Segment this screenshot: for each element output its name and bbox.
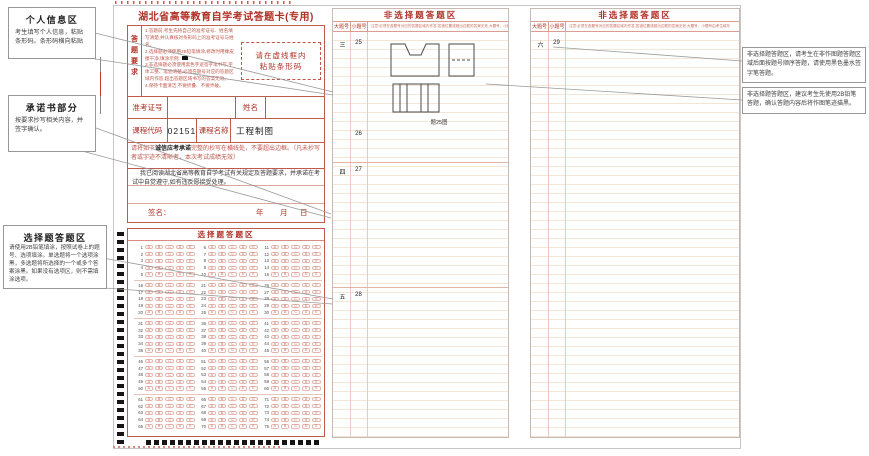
answer-bubble-b[interactable]: B bbox=[218, 290, 227, 294]
answer-bubble-a[interactable]: A bbox=[145, 304, 154, 308]
answer-bubble-c[interactable]: C bbox=[291, 348, 300, 352]
answer-bubble-c[interactable]: C bbox=[228, 266, 237, 270]
answer-bubble-d[interactable]: D bbox=[239, 252, 248, 256]
answer-bubble-a[interactable]: A bbox=[208, 252, 217, 256]
answer-bubble-a[interactable]: A bbox=[145, 321, 154, 325]
answer-bubble-e[interactable]: E bbox=[312, 328, 321, 332]
answer-bubble-c[interactable]: C bbox=[228, 310, 237, 314]
answer-bubble-e[interactable]: E bbox=[249, 366, 258, 370]
answer-bubble-e[interactable]: E bbox=[186, 328, 195, 332]
answer-bubble-b[interactable]: B bbox=[155, 386, 164, 390]
answer-bubble-a[interactable]: A bbox=[208, 373, 217, 377]
answer-bubble-d[interactable]: D bbox=[239, 380, 248, 384]
answer-bubble-d[interactable]: D bbox=[302, 266, 311, 270]
answer-bubble-b[interactable]: B bbox=[218, 342, 227, 346]
answer-bubble-e[interactable]: E bbox=[186, 245, 195, 249]
answer-bubble-b[interactable]: B bbox=[218, 252, 227, 256]
answer-bubble-a[interactable]: A bbox=[271, 397, 280, 401]
answer-bubble-b[interactable]: B bbox=[281, 397, 290, 401]
answer-bubble-d[interactable]: D bbox=[239, 359, 248, 363]
answer-bubble-a[interactable]: A bbox=[208, 411, 217, 415]
answer-bubble-e[interactable]: E bbox=[312, 342, 321, 346]
answer-bubble-d[interactable]: D bbox=[176, 266, 185, 270]
answer-bubble-e[interactable]: E bbox=[312, 266, 321, 270]
answer-bubble-a[interactable]: A bbox=[271, 283, 280, 287]
answer-bubble-c[interactable]: C bbox=[165, 386, 174, 390]
answer-bubble-b[interactable]: B bbox=[218, 304, 227, 308]
answer-bubble-b[interactable]: B bbox=[155, 366, 164, 370]
answer-bubble-e[interactable]: E bbox=[249, 272, 258, 276]
answer-bubble-c[interactable]: C bbox=[165, 404, 174, 408]
answer-bubble-a[interactable]: A bbox=[271, 424, 280, 428]
answer-bubble-c[interactable]: C bbox=[291, 272, 300, 276]
answer-bubble-c[interactable]: C bbox=[165, 366, 174, 370]
answer-bubble-c[interactable]: C bbox=[165, 272, 174, 276]
essay-answer-area[interactable]: 六 29 bbox=[531, 32, 739, 437]
answer-bubble-b[interactable]: B bbox=[281, 283, 290, 287]
answer-bubble-d[interactable]: D bbox=[239, 304, 248, 308]
essay-answer-area[interactable]: 三 25 26 四 27 五 28 题25图 bbox=[333, 32, 508, 437]
answer-bubble-b[interactable]: B bbox=[218, 310, 227, 314]
answer-bubble-a[interactable]: A bbox=[271, 328, 280, 332]
answer-bubble-c[interactable]: C bbox=[291, 252, 300, 256]
answer-bubble-a[interactable]: A bbox=[208, 418, 217, 422]
answer-bubble-c[interactable]: C bbox=[291, 245, 300, 249]
answer-bubble-d[interactable]: D bbox=[176, 424, 185, 428]
answer-bubble-c[interactable]: C bbox=[291, 380, 300, 384]
answer-bubble-a[interactable]: A bbox=[271, 297, 280, 301]
answer-bubble-d[interactable]: D bbox=[176, 290, 185, 294]
answer-bubble-a[interactable]: A bbox=[271, 386, 280, 390]
answer-bubble-d[interactable]: D bbox=[176, 348, 185, 352]
answer-bubble-e[interactable]: E bbox=[312, 290, 321, 294]
answer-bubble-d[interactable]: D bbox=[302, 359, 311, 363]
answer-bubble-c[interactable]: C bbox=[228, 373, 237, 377]
answer-bubble-e[interactable]: E bbox=[249, 245, 258, 249]
answer-bubble-b[interactable]: B bbox=[281, 386, 290, 390]
answer-bubble-a[interactable]: A bbox=[208, 266, 217, 270]
answer-bubble-b[interactable]: B bbox=[155, 342, 164, 346]
answer-bubble-b[interactable]: B bbox=[218, 366, 227, 370]
answer-bubble-d[interactable]: D bbox=[302, 245, 311, 249]
answer-bubble-e[interactable]: E bbox=[312, 386, 321, 390]
answer-bubble-b[interactable]: B bbox=[281, 424, 290, 428]
answer-bubble-a[interactable]: A bbox=[145, 290, 154, 294]
answer-bubble-e[interactable]: E bbox=[249, 348, 258, 352]
answer-bubble-c[interactable]: C bbox=[228, 348, 237, 352]
answer-bubble-b[interactable]: B bbox=[155, 310, 164, 314]
answer-bubble-a[interactable]: A bbox=[145, 297, 154, 301]
answer-bubble-d[interactable]: D bbox=[239, 266, 248, 270]
answer-bubble-b[interactable]: B bbox=[281, 348, 290, 352]
answer-bubble-e[interactable]: E bbox=[312, 359, 321, 363]
answer-bubble-e[interactable]: E bbox=[186, 404, 195, 408]
answer-bubble-e[interactable]: E bbox=[249, 297, 258, 301]
answer-bubble-e[interactable]: E bbox=[249, 283, 258, 287]
answer-bubble-b[interactable]: B bbox=[281, 342, 290, 346]
answer-bubble-e[interactable]: E bbox=[312, 335, 321, 339]
answer-bubble-d[interactable]: D bbox=[176, 373, 185, 377]
answer-bubble-d[interactable]: D bbox=[302, 283, 311, 287]
answer-bubble-d[interactable]: D bbox=[239, 397, 248, 401]
answer-bubble-a[interactable]: A bbox=[208, 397, 217, 401]
answer-bubble-d[interactable]: D bbox=[176, 359, 185, 363]
answer-bubble-a[interactable]: A bbox=[208, 335, 217, 339]
answer-bubble-e[interactable]: E bbox=[312, 252, 321, 256]
answer-bubble-e[interactable]: E bbox=[186, 266, 195, 270]
answer-bubble-d[interactable]: D bbox=[239, 321, 248, 325]
answer-bubble-e[interactable]: E bbox=[249, 411, 258, 415]
answer-bubble-d[interactable]: D bbox=[239, 297, 248, 301]
answer-bubble-c[interactable]: C bbox=[228, 366, 237, 370]
answer-bubble-b[interactable]: B bbox=[155, 266, 164, 270]
answer-bubble-d[interactable]: D bbox=[176, 321, 185, 325]
answer-bubble-b[interactable]: B bbox=[281, 411, 290, 415]
answer-bubble-b[interactable]: B bbox=[281, 304, 290, 308]
answer-bubble-d[interactable]: D bbox=[302, 335, 311, 339]
answer-bubble-c[interactable]: C bbox=[228, 380, 237, 384]
answer-bubble-a[interactable]: A bbox=[271, 259, 280, 263]
answer-bubble-e[interactable]: E bbox=[186, 259, 195, 263]
answer-bubble-c[interactable]: C bbox=[228, 321, 237, 325]
answer-bubble-a[interactable]: A bbox=[145, 328, 154, 332]
answer-bubble-b[interactable]: B bbox=[218, 283, 227, 287]
answer-bubble-d[interactable]: D bbox=[302, 348, 311, 352]
answer-bubble-c[interactable]: C bbox=[165, 304, 174, 308]
answer-bubble-c[interactable]: C bbox=[291, 424, 300, 428]
answer-bubble-b[interactable]: B bbox=[281, 272, 290, 276]
answer-bubble-a[interactable]: A bbox=[208, 290, 217, 294]
answer-bubble-b[interactable]: B bbox=[218, 397, 227, 401]
answer-bubble-d[interactable]: D bbox=[176, 252, 185, 256]
answer-bubble-a[interactable]: A bbox=[271, 290, 280, 294]
answer-bubble-e[interactable]: E bbox=[249, 424, 258, 428]
answer-bubble-c[interactable]: C bbox=[228, 272, 237, 276]
answer-bubble-b[interactable]: B bbox=[281, 335, 290, 339]
answer-bubble-d[interactable]: D bbox=[302, 366, 311, 370]
answer-bubble-b[interactable]: B bbox=[155, 380, 164, 384]
answer-bubble-a[interactable]: A bbox=[208, 404, 217, 408]
answer-bubble-e[interactable]: E bbox=[186, 310, 195, 314]
answer-bubble-c[interactable]: C bbox=[228, 328, 237, 332]
answer-bubble-d[interactable]: D bbox=[176, 335, 185, 339]
answer-bubble-e[interactable]: E bbox=[186, 348, 195, 352]
answer-bubble-a[interactable]: A bbox=[145, 272, 154, 276]
answer-bubble-c[interactable]: C bbox=[291, 418, 300, 422]
answer-bubble-b[interactable]: B bbox=[281, 310, 290, 314]
answer-bubble-b[interactable]: B bbox=[218, 259, 227, 263]
answer-bubble-b[interactable]: B bbox=[218, 386, 227, 390]
answer-bubble-c[interactable]: C bbox=[228, 404, 237, 408]
answer-bubble-c[interactable]: C bbox=[228, 411, 237, 415]
answer-bubble-d[interactable]: D bbox=[302, 418, 311, 422]
answer-bubble-d[interactable]: D bbox=[302, 386, 311, 390]
answer-bubble-e[interactable]: E bbox=[186, 290, 195, 294]
answer-bubble-d[interactable]: D bbox=[239, 348, 248, 352]
answer-bubble-b[interactable]: B bbox=[218, 348, 227, 352]
answer-bubble-c[interactable]: C bbox=[165, 245, 174, 249]
answer-bubble-d[interactable]: D bbox=[239, 411, 248, 415]
answer-bubble-d[interactable]: D bbox=[239, 283, 248, 287]
answer-bubble-b[interactable]: B bbox=[155, 359, 164, 363]
answer-bubble-c[interactable]: C bbox=[165, 418, 174, 422]
answer-bubble-c[interactable]: C bbox=[291, 310, 300, 314]
answer-bubble-c[interactable]: C bbox=[291, 321, 300, 325]
answer-bubble-c[interactable]: C bbox=[165, 328, 174, 332]
answer-bubble-c[interactable]: C bbox=[291, 328, 300, 332]
answer-bubble-c[interactable]: C bbox=[291, 373, 300, 377]
answer-bubble-b[interactable]: B bbox=[155, 335, 164, 339]
answer-bubble-d[interactable]: D bbox=[176, 366, 185, 370]
answer-bubble-e[interactable]: E bbox=[186, 418, 195, 422]
answer-bubble-b[interactable]: B bbox=[155, 321, 164, 325]
answer-bubble-d[interactable]: D bbox=[176, 297, 185, 301]
answer-bubble-c[interactable]: C bbox=[165, 397, 174, 401]
answer-bubble-a[interactable]: A bbox=[145, 366, 154, 370]
answer-bubble-e[interactable]: E bbox=[186, 386, 195, 390]
answer-bubble-b[interactable]: B bbox=[281, 373, 290, 377]
answer-bubble-d[interactable]: D bbox=[239, 342, 248, 346]
answer-bubble-b[interactable]: B bbox=[218, 404, 227, 408]
answer-bubble-d[interactable]: D bbox=[176, 411, 185, 415]
answer-bubble-a[interactable]: A bbox=[271, 266, 280, 270]
answer-bubble-e[interactable]: E bbox=[312, 348, 321, 352]
answer-bubble-d[interactable]: D bbox=[302, 272, 311, 276]
answer-bubble-e[interactable]: E bbox=[249, 310, 258, 314]
answer-bubble-a[interactable]: A bbox=[145, 424, 154, 428]
answer-bubble-d[interactable]: D bbox=[302, 252, 311, 256]
answer-bubble-d[interactable]: D bbox=[302, 380, 311, 384]
answer-bubble-b[interactable]: B bbox=[155, 397, 164, 401]
answer-bubble-e[interactable]: E bbox=[312, 245, 321, 249]
answer-bubble-b[interactable]: B bbox=[155, 259, 164, 263]
answer-bubble-d[interactable]: D bbox=[239, 373, 248, 377]
answer-bubble-e[interactable]: E bbox=[249, 397, 258, 401]
answer-bubble-a[interactable]: A bbox=[208, 283, 217, 287]
answer-bubble-d[interactable]: D bbox=[239, 245, 248, 249]
answer-bubble-b[interactable]: B bbox=[155, 411, 164, 415]
answer-bubble-e[interactable]: E bbox=[249, 418, 258, 422]
answer-bubble-a[interactable]: A bbox=[145, 245, 154, 249]
answer-bubble-a[interactable]: A bbox=[208, 259, 217, 263]
answer-bubble-b[interactable]: B bbox=[281, 266, 290, 270]
answer-bubble-c[interactable]: C bbox=[291, 259, 300, 263]
answer-bubble-d[interactable]: D bbox=[176, 386, 185, 390]
answer-bubble-e[interactable]: E bbox=[312, 380, 321, 384]
answer-bubble-a[interactable]: A bbox=[145, 283, 154, 287]
answer-bubble-b[interactable]: B bbox=[218, 424, 227, 428]
answer-bubble-c[interactable]: C bbox=[165, 310, 174, 314]
answer-bubble-c[interactable]: C bbox=[165, 259, 174, 263]
answer-bubble-c[interactable]: C bbox=[228, 424, 237, 428]
answer-bubble-b[interactable]: B bbox=[218, 373, 227, 377]
answer-bubble-d[interactable]: D bbox=[302, 397, 311, 401]
answer-bubble-a[interactable]: A bbox=[145, 411, 154, 415]
answer-bubble-c[interactable]: C bbox=[291, 290, 300, 294]
answer-bubble-a[interactable]: A bbox=[271, 310, 280, 314]
answer-bubble-b[interactable]: B bbox=[155, 245, 164, 249]
answer-bubble-d[interactable]: D bbox=[176, 418, 185, 422]
answer-bubble-e[interactable]: E bbox=[186, 424, 195, 428]
answer-bubble-d[interactable]: D bbox=[302, 328, 311, 332]
answer-bubble-c[interactable]: C bbox=[291, 397, 300, 401]
answer-bubble-b[interactable]: B bbox=[155, 328, 164, 332]
answer-bubble-e[interactable]: E bbox=[249, 328, 258, 332]
answer-bubble-c[interactable]: C bbox=[291, 342, 300, 346]
answer-bubble-e[interactable]: E bbox=[186, 252, 195, 256]
answer-bubble-e[interactable]: E bbox=[312, 321, 321, 325]
answer-bubble-a[interactable]: A bbox=[271, 380, 280, 384]
answer-bubble-e[interactable]: E bbox=[312, 259, 321, 263]
answer-bubble-d[interactable]: D bbox=[239, 259, 248, 263]
answer-bubble-a[interactable]: A bbox=[145, 418, 154, 422]
answer-bubble-a[interactable]: A bbox=[271, 366, 280, 370]
answer-bubble-c[interactable]: C bbox=[165, 373, 174, 377]
answer-bubble-a[interactable]: A bbox=[271, 321, 280, 325]
answer-bubble-d[interactable]: D bbox=[176, 272, 185, 276]
answer-bubble-b[interactable]: B bbox=[281, 380, 290, 384]
answer-bubble-e[interactable]: E bbox=[312, 397, 321, 401]
answer-bubble-d[interactable]: D bbox=[176, 245, 185, 249]
answer-bubble-b[interactable]: B bbox=[281, 404, 290, 408]
answer-bubble-a[interactable]: A bbox=[208, 245, 217, 249]
answer-bubble-a[interactable]: A bbox=[271, 252, 280, 256]
answer-bubble-c[interactable]: C bbox=[165, 290, 174, 294]
answer-bubble-e[interactable]: E bbox=[249, 380, 258, 384]
answer-bubble-b[interactable]: B bbox=[218, 380, 227, 384]
answer-bubble-a[interactable]: A bbox=[208, 297, 217, 301]
answer-bubble-d[interactable]: D bbox=[302, 297, 311, 301]
answer-bubble-e[interactable]: E bbox=[312, 310, 321, 314]
answer-bubble-e[interactable]: E bbox=[249, 386, 258, 390]
answer-bubble-b[interactable]: B bbox=[155, 404, 164, 408]
answer-bubble-b[interactable]: B bbox=[281, 290, 290, 294]
answer-bubble-b[interactable]: B bbox=[218, 411, 227, 415]
answer-bubble-c[interactable]: C bbox=[228, 252, 237, 256]
answer-bubble-e[interactable]: E bbox=[186, 359, 195, 363]
answer-bubble-c[interactable]: C bbox=[228, 335, 237, 339]
answer-bubble-c[interactable]: C bbox=[228, 283, 237, 287]
answer-bubble-c[interactable]: C bbox=[228, 297, 237, 301]
answer-bubble-b[interactable]: B bbox=[218, 335, 227, 339]
answer-bubble-c[interactable]: C bbox=[228, 342, 237, 346]
answer-bubble-e[interactable]: E bbox=[312, 304, 321, 308]
answer-bubble-e[interactable]: E bbox=[312, 272, 321, 276]
answer-bubble-a[interactable]: A bbox=[145, 386, 154, 390]
answer-bubble-a[interactable]: A bbox=[145, 373, 154, 377]
answer-bubble-b[interactable]: B bbox=[281, 252, 290, 256]
answer-bubble-c[interactable]: C bbox=[165, 342, 174, 346]
answer-bubble-c[interactable]: C bbox=[228, 418, 237, 422]
answer-bubble-a[interactable]: A bbox=[271, 404, 280, 408]
answer-bubble-a[interactable]: A bbox=[271, 272, 280, 276]
answer-bubble-a[interactable]: A bbox=[208, 348, 217, 352]
answer-bubble-d[interactable]: D bbox=[176, 304, 185, 308]
answer-bubble-c[interactable]: C bbox=[291, 283, 300, 287]
answer-bubble-c[interactable]: C bbox=[291, 366, 300, 370]
admission-no-field[interactable] bbox=[168, 97, 236, 118]
answer-bubble-a[interactable]: A bbox=[145, 252, 154, 256]
answer-bubble-d[interactable]: D bbox=[302, 404, 311, 408]
answer-bubble-b[interactable]: B bbox=[281, 328, 290, 332]
answer-bubble-a[interactable]: A bbox=[208, 321, 217, 325]
answer-bubble-d[interactable]: D bbox=[176, 259, 185, 263]
answer-bubble-c[interactable]: C bbox=[165, 335, 174, 339]
answer-bubble-c[interactable]: C bbox=[291, 266, 300, 270]
answer-bubble-b[interactable]: B bbox=[218, 297, 227, 301]
answer-bubble-b[interactable]: B bbox=[218, 359, 227, 363]
answer-bubble-e[interactable]: E bbox=[249, 290, 258, 294]
answer-bubble-a[interactable]: A bbox=[271, 335, 280, 339]
answer-bubble-e[interactable]: E bbox=[186, 342, 195, 346]
pledge-copy-line[interactable] bbox=[128, 186, 324, 204]
answer-bubble-d[interactable]: D bbox=[176, 328, 185, 332]
answer-bubble-d[interactable]: D bbox=[176, 397, 185, 401]
answer-bubble-a[interactable]: A bbox=[145, 342, 154, 346]
answer-bubble-a[interactable]: A bbox=[145, 404, 154, 408]
answer-bubble-a[interactable]: A bbox=[271, 359, 280, 363]
answer-bubble-a[interactable]: A bbox=[208, 386, 217, 390]
answer-bubble-a[interactable]: A bbox=[145, 259, 154, 263]
answer-bubble-e[interactable]: E bbox=[312, 297, 321, 301]
answer-bubble-e[interactable]: E bbox=[186, 373, 195, 377]
answer-bubble-c[interactable]: C bbox=[165, 297, 174, 301]
answer-bubble-b[interactable]: B bbox=[281, 321, 290, 325]
answer-bubble-a[interactable]: A bbox=[208, 304, 217, 308]
answer-bubble-d[interactable]: D bbox=[302, 373, 311, 377]
answer-bubble-b[interactable]: B bbox=[218, 328, 227, 332]
name-field[interactable] bbox=[266, 97, 324, 118]
answer-bubble-e[interactable]: E bbox=[312, 424, 321, 428]
answer-bubble-a[interactable]: A bbox=[208, 272, 217, 276]
answer-bubble-c[interactable]: C bbox=[291, 359, 300, 363]
answer-bubble-e[interactable]: E bbox=[312, 366, 321, 370]
answer-bubble-d[interactable]: D bbox=[239, 424, 248, 428]
answer-bubble-c[interactable]: C bbox=[291, 404, 300, 408]
answer-bubble-d[interactable]: D bbox=[176, 342, 185, 346]
answer-bubble-a[interactable]: A bbox=[271, 373, 280, 377]
answer-bubble-d[interactable]: D bbox=[176, 310, 185, 314]
answer-bubble-d[interactable]: D bbox=[239, 386, 248, 390]
answer-bubble-b[interactable]: B bbox=[155, 290, 164, 294]
answer-bubble-e[interactable]: E bbox=[186, 321, 195, 325]
barcode-paste-area[interactable]: 请在虚线框内 粘贴条形码 bbox=[241, 42, 321, 80]
answer-bubble-d[interactable]: D bbox=[302, 411, 311, 415]
answer-bubble-e[interactable]: E bbox=[249, 342, 258, 346]
answer-bubble-b[interactable]: B bbox=[155, 424, 164, 428]
answer-bubble-a[interactable]: A bbox=[145, 310, 154, 314]
answer-bubble-c[interactable]: C bbox=[165, 252, 174, 256]
answer-bubble-b[interactable]: B bbox=[281, 245, 290, 249]
answer-bubble-c[interactable]: C bbox=[228, 290, 237, 294]
answer-bubble-a[interactable]: A bbox=[145, 397, 154, 401]
answer-bubble-e[interactable]: E bbox=[186, 411, 195, 415]
answer-bubble-a[interactable]: A bbox=[208, 359, 217, 363]
answer-bubble-c[interactable]: C bbox=[165, 424, 174, 428]
answer-bubble-d[interactable]: D bbox=[302, 424, 311, 428]
answer-bubble-c[interactable]: C bbox=[291, 335, 300, 339]
answer-bubble-e[interactable]: E bbox=[249, 252, 258, 256]
answer-bubble-c[interactable]: C bbox=[291, 304, 300, 308]
answer-bubble-e[interactable]: E bbox=[249, 259, 258, 263]
answer-bubble-a[interactable]: A bbox=[271, 418, 280, 422]
answer-bubble-a[interactable]: A bbox=[208, 366, 217, 370]
answer-bubble-d[interactable]: D bbox=[239, 328, 248, 332]
answer-bubble-e[interactable]: E bbox=[312, 404, 321, 408]
answer-bubble-e[interactable]: E bbox=[249, 404, 258, 408]
answer-bubble-a[interactable]: A bbox=[145, 348, 154, 352]
answer-bubble-b[interactable]: B bbox=[218, 418, 227, 422]
